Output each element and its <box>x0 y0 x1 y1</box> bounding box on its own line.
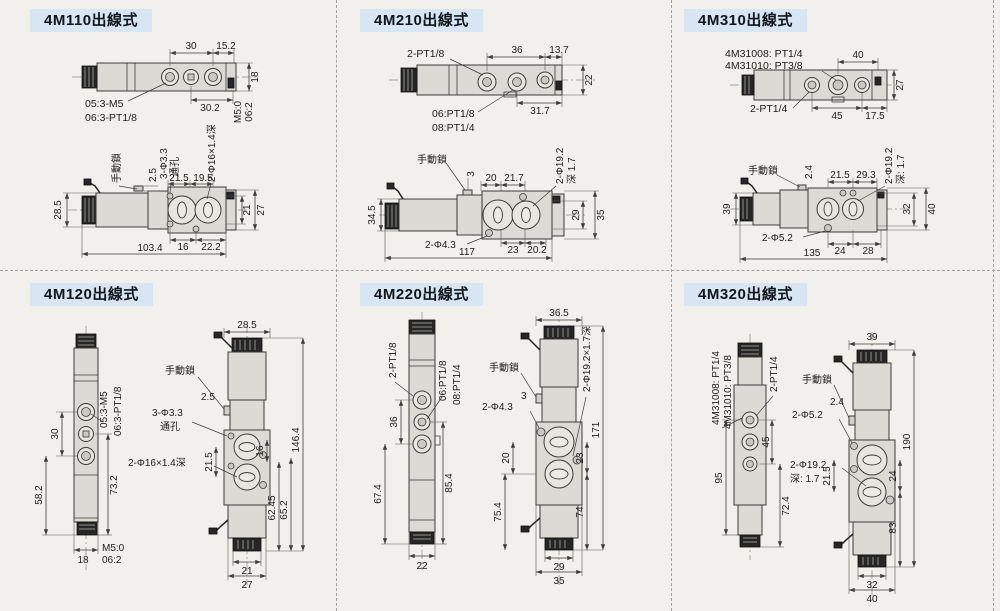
dim-total: 103.4 <box>137 243 162 254</box>
manual-lock-label: 手動鎖 <box>110 153 123 183</box>
dim-b2: 20.2 <box>527 245 547 256</box>
panel-4m210: 4M210出線式 36 13.7 22 31.7 <box>337 0 672 270</box>
manual-lock-label: 手動鎖 <box>165 364 195 377</box>
dim-r1: 29 <box>571 209 582 221</box>
dim-right: 85.4 <box>444 473 455 493</box>
dim-pitch: 30 <box>50 428 61 440</box>
panel-4m220: 4M220出線式 2-PT1/8 06:PT1/8 08:PT1/4 36 <box>337 270 672 611</box>
dim-b2: 17.5 <box>865 111 885 122</box>
dim-3: 3 <box>521 391 527 402</box>
dim-b2: 22.2 <box>201 242 221 253</box>
dim-r2: 62.45 <box>267 495 278 520</box>
dim-rot1: M5:0 <box>233 100 244 123</box>
dim-b2: 35 <box>553 576 565 587</box>
dim-span: 30.2 <box>200 103 220 114</box>
dim-b1: 23 <box>507 245 519 256</box>
dim-v2: 23 <box>575 452 586 464</box>
dim-left: 28.5 <box>53 200 64 220</box>
port-option-2: 06:3-PT1/8 <box>113 386 124 436</box>
port-option-1: 06:PT1/8 <box>432 108 475 120</box>
counterbore-label: 2-Φ19.2 <box>555 147 566 184</box>
dim-lower: 75.4 <box>493 502 504 522</box>
dim-total: 146.4 <box>291 427 302 452</box>
dim-3: 3 <box>466 171 477 177</box>
dim-height: 27 <box>895 79 906 91</box>
drawing-4m320: 4M31008: PT1/4 4M31010: PT3/8 2-PT1/4 45… <box>672 270 1000 611</box>
dim-a1: 20 <box>485 173 497 184</box>
dim-2-5: 2.5 <box>148 168 159 182</box>
dim-r2: 40 <box>927 203 938 215</box>
through-hole-label: 通孔 <box>160 421 180 433</box>
port-option-1: 4M31008: PT1/4 <box>711 351 722 425</box>
dim-v1: 20 <box>501 452 512 464</box>
drawing-4m110: 30 15.2 18 30.2 M5:0 06:2 05:3-M5 06:3-P… <box>0 0 337 270</box>
dim-end: 13.7 <box>549 45 569 56</box>
dim-width: 39 <box>866 332 878 343</box>
dim-r3: 65.2 <box>279 500 290 520</box>
depth-label: 深: 1.7 <box>790 473 820 485</box>
counterbore-label: 2-Φ16×1.4深 <box>128 457 186 469</box>
manual-lock-label: 手動鎖 <box>748 164 778 177</box>
dim-span: 31.7 <box>530 106 550 117</box>
port-option-1: 05:3-M5 <box>85 98 124 110</box>
dim-v1: 45 <box>761 436 772 448</box>
dim-total: 117 <box>459 247 475 258</box>
dim-a1: 21.5 <box>169 173 189 184</box>
dim-total: 190 <box>902 433 913 450</box>
dim-height: 18 <box>250 71 261 83</box>
dim-r1: 24 <box>888 470 899 482</box>
top-view-body <box>389 65 595 97</box>
drawing-4m220: 2-PT1/8 06:PT1/8 08:PT1/4 36 67.4 85.4 2… <box>337 270 672 611</box>
side-view-body <box>379 183 585 239</box>
dim-left: 39 <box>722 203 733 215</box>
dim-r1: 16 <box>255 445 266 457</box>
holes-label: 2-Φ5.2 <box>762 233 793 244</box>
counterbore-label: 2-Φ19.2 <box>790 460 827 471</box>
manual-lock-label: 手動鎖 <box>417 153 447 166</box>
dim-lower: 67.4 <box>373 484 384 504</box>
dim-a2: 19.5 <box>193 173 213 184</box>
dim-r1: 21 <box>242 204 253 216</box>
manual-lock-label: 手動鎖 <box>802 373 832 386</box>
dim-lower: 58.2 <box>34 485 45 505</box>
dim-v2: 95 <box>714 472 725 484</box>
dim-b1: 21 <box>241 566 253 577</box>
manual-lock-label: 手動鎖 <box>489 361 519 374</box>
dim-rot2: 06:2 <box>244 102 255 122</box>
dim-pitch: 36 <box>511 45 523 56</box>
drawing-4m120: 05:3-M5 06:3-PT1/8 30 58.2 73.2 18 M5:0 … <box>0 270 337 611</box>
side-view-body <box>521 308 582 585</box>
top-view-body <box>730 70 904 102</box>
panel-4m310: 4M310出線式 4M31008: PT1/4 4M31010: PT3/8 4… <box>672 0 1000 270</box>
dim-2-4: 2.4 <box>830 397 844 408</box>
holes-label: 2-Φ4.3 <box>425 240 456 251</box>
dim-2-4: 2.4 <box>804 165 815 179</box>
drawing-4m210: 36 13.7 22 31.7 2-PT1/8 06:PT1/8 08:PT1/… <box>337 0 672 270</box>
drawing-4m310: 4M31008: PT1/4 4M31010: PT3/8 40 27 2-PT… <box>672 0 1000 270</box>
panel-4m320: 4M320出線式 4M31008: PT1/4 4M31010: PT3/8 2… <box>672 270 1000 611</box>
dim-a2: 29.3 <box>856 170 876 181</box>
port-option-2: 4M31010: PT3/8 <box>725 60 803 72</box>
ports-label: 2-PT1/4 <box>769 356 780 392</box>
counterbore-label: 2-Φ19.2×1.7深 <box>581 326 593 392</box>
holes-label: 2-Φ4.3 <box>482 402 513 413</box>
hole-label: 3-Φ3.3 <box>152 408 183 419</box>
dim-r1: 32 <box>902 203 913 215</box>
dim-b1: 24 <box>834 246 846 257</box>
ports-label: 2-PT1/4 <box>750 103 788 115</box>
panel-4m120: 4M120出線式 05:3-M5 06:3-PT1/8 30 58.2 <box>0 270 337 611</box>
dim-height: 22 <box>584 74 595 86</box>
top-view-body <box>72 63 258 91</box>
dim-r2: 83 <box>888 522 899 534</box>
dim-width: 28.5 <box>237 320 257 331</box>
dim-b2: 28 <box>862 246 874 257</box>
ports-label: 2-PT1/8 <box>388 342 399 378</box>
dim-rot1: M5:0 <box>102 543 125 554</box>
depth-label: 深: 1.7 <box>895 154 907 184</box>
port-option-1: 4M31008: PT1/4 <box>725 48 803 60</box>
dim-total: 135 <box>804 248 821 259</box>
dim-r2: 27 <box>256 204 267 216</box>
dim-2-5: 2.5 <box>201 392 215 403</box>
catalog-page: 4M110出線式 30 15.2 18 30.2 M5: <box>0 0 1000 611</box>
front-view-body <box>74 326 98 570</box>
dim-rot2: 06:2 <box>102 555 122 566</box>
dim-r2: 35 <box>596 209 607 221</box>
dim-b2: 40 <box>866 594 878 605</box>
side-view-body <box>834 332 895 600</box>
side-view-body <box>68 179 250 233</box>
dim-left: 34.5 <box>367 205 378 225</box>
holes-label: 2-Φ5.2 <box>792 410 823 421</box>
port-option-1: 05:3-M5 <box>99 391 110 428</box>
dim-end: 15.2 <box>216 41 236 52</box>
dim-a1: 21.5 <box>830 170 850 181</box>
depth-label: 深 1.7 <box>566 157 578 184</box>
dim-right: 73.2 <box>109 475 120 495</box>
dim-total: 171 <box>591 421 602 438</box>
dim-width: 18 <box>77 555 89 566</box>
dim-width: 22 <box>416 561 428 572</box>
port-option-2: 4M31010: PT3/8 <box>723 355 734 429</box>
dim-b1: 29 <box>553 562 565 573</box>
front-view-body <box>409 312 440 570</box>
dim-b1: 32 <box>866 580 878 591</box>
side-view-dims: 28.5 手動鎖 2.5 3-Φ3.3 通孔 21.5 2-Φ16×1.4深 1… <box>128 320 303 591</box>
panel-4m110: 4M110出線式 30 15.2 18 30.2 M5: <box>0 0 337 270</box>
dim-b1: 16 <box>177 242 189 253</box>
counterbore-label: 2-Φ19.2 <box>884 147 895 184</box>
dim-21-5: 21.5 <box>204 452 215 472</box>
dim-v3: 72.4 <box>781 496 792 516</box>
port-option-1: 06:PT1/8 <box>438 360 449 401</box>
port-option-2: 06:3-PT1/8 <box>85 112 137 124</box>
dim-pitch: 36 <box>389 416 400 428</box>
dim-width: 36.5 <box>549 308 569 319</box>
dim-pitch: 30 <box>185 41 197 52</box>
ports-label: 2-PT1/8 <box>407 48 445 60</box>
dim-v3: 74 <box>575 506 586 518</box>
dim-b1: 45 <box>831 111 843 122</box>
dim-a2: 21.7 <box>504 173 524 184</box>
port-option-2: 08:PT1/4 <box>452 364 463 405</box>
port-option-2: 08:PT1/4 <box>432 122 475 134</box>
dim-pitch: 40 <box>852 50 864 61</box>
dim-b2: 27 <box>241 580 253 591</box>
